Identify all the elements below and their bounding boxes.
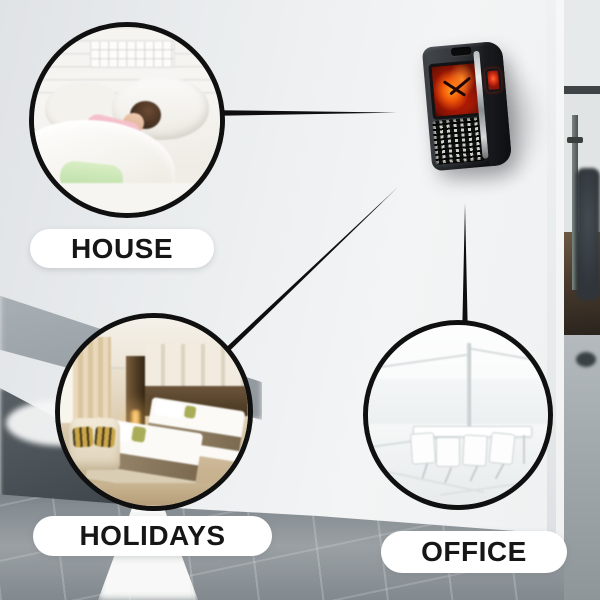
office-photo <box>368 325 548 505</box>
connector-line-house <box>219 110 397 116</box>
label-pill-house: HOUSE <box>30 229 214 268</box>
product-heater <box>422 41 513 172</box>
window-mullion <box>467 343 471 433</box>
label-pill-holidays: HOLIDAYS <box>33 516 272 556</box>
white-chair <box>463 434 488 466</box>
callout-circle-office <box>363 320 553 510</box>
table-leg <box>523 435 525 464</box>
label-pill-office: OFFICE <box>381 531 567 573</box>
callout-circle-house <box>29 22 225 218</box>
heater-air-grille <box>432 117 485 165</box>
armchair <box>69 418 120 471</box>
white-chair <box>436 437 460 468</box>
holidays-photo <box>60 318 248 506</box>
white-chair <box>489 432 516 465</box>
window-sky-view <box>368 379 548 424</box>
striped-cushion <box>73 426 95 447</box>
hotel-carpet <box>60 483 248 506</box>
striped-cushion <box>94 426 116 448</box>
wall-decor-panel <box>90 40 176 68</box>
heater-power-button <box>485 68 502 92</box>
bed-pillow <box>154 400 184 419</box>
product-marketing-image: HOUSE HOLIDAYS OFFICE <box>0 0 600 600</box>
callout-circle-holidays <box>55 313 253 511</box>
bed-front <box>34 183 220 213</box>
green-accent-pillow <box>184 405 197 419</box>
white-chair <box>410 432 436 464</box>
green-accent-pillow <box>132 426 147 443</box>
connector-line-office <box>462 203 467 327</box>
house-photo <box>34 27 220 213</box>
